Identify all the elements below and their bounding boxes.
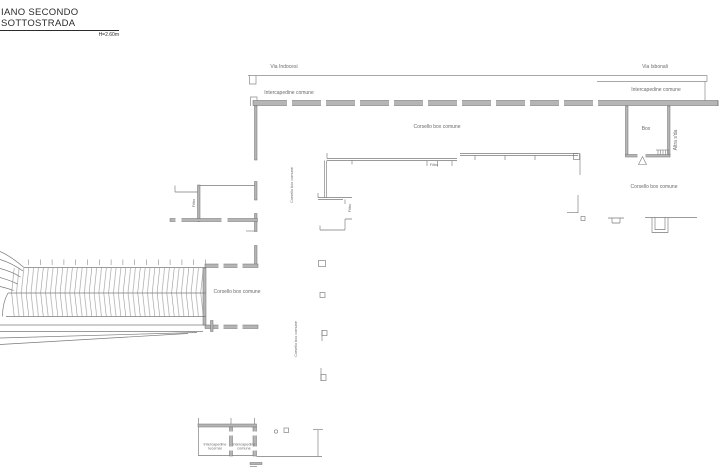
- ramp-hatching: [11, 268, 203, 317]
- floor-plan-drawing: IANO SECONDO SOTTOSTRADA H=2.60m Via Ind…: [0, 0, 725, 471]
- ramp: [0, 252, 206, 345]
- title-block: IANO SECONDO SOTTOSTRADA H=2.60m: [0, 7, 130, 38]
- label-filtro-left: Filtro: [192, 199, 196, 207]
- title-underline: [0, 30, 119, 31]
- central-structure: [318, 153, 580, 230]
- label-intercapedine-top-left: Intercapedine comune: [264, 91, 313, 97]
- label-intercapedine-lucernai: Intercapedine lucernai: [200, 443, 230, 452]
- box-room: [626, 106, 671, 165]
- plan-geometry: [0, 0, 725, 471]
- label-street-left: Via Indocesi: [270, 65, 297, 71]
- right-mid-elements: [567, 195, 697, 233]
- plan-title: IANO SECONDO SOTTOSTRADA: [1, 7, 130, 29]
- top-corridor-wall: [253, 100, 718, 106]
- label-box-room: Box: [642, 127, 651, 133]
- label-street-right: Via Isbonali: [642, 65, 668, 71]
- label-corsello-left: Corsello box comune: [214, 290, 261, 296]
- label-corsello-top: Corsello box comune: [414, 125, 461, 131]
- pier-rows: [203, 264, 258, 332]
- label-corsello-vertical-lower: Corsello box comune: [294, 321, 298, 357]
- small-table-element: [608, 218, 624, 223]
- label-filtro-mid-vertical: Filtro: [348, 204, 352, 212]
- height-note: H=2.60m: [0, 32, 119, 38]
- label-intercapedine-top-right: Intercapedine comune: [631, 88, 680, 94]
- door-swing-triangle: [639, 157, 647, 165]
- ramp-tick-row: [29, 260, 206, 266]
- label-intercapedine-bottom: Intercapedine comune: [230, 443, 258, 452]
- label-corsello-right: Corsello box comune: [631, 185, 678, 191]
- label-altra-strada: Altra s'da: [674, 130, 680, 151]
- label-corsello-vertical-upper: Corsello box comune: [290, 167, 294, 203]
- column-stubs: [319, 261, 328, 382]
- stair-element: [652, 218, 668, 233]
- label-filtro-mid: Filtro: [430, 163, 438, 167]
- filtro-room-left: [170, 185, 258, 222]
